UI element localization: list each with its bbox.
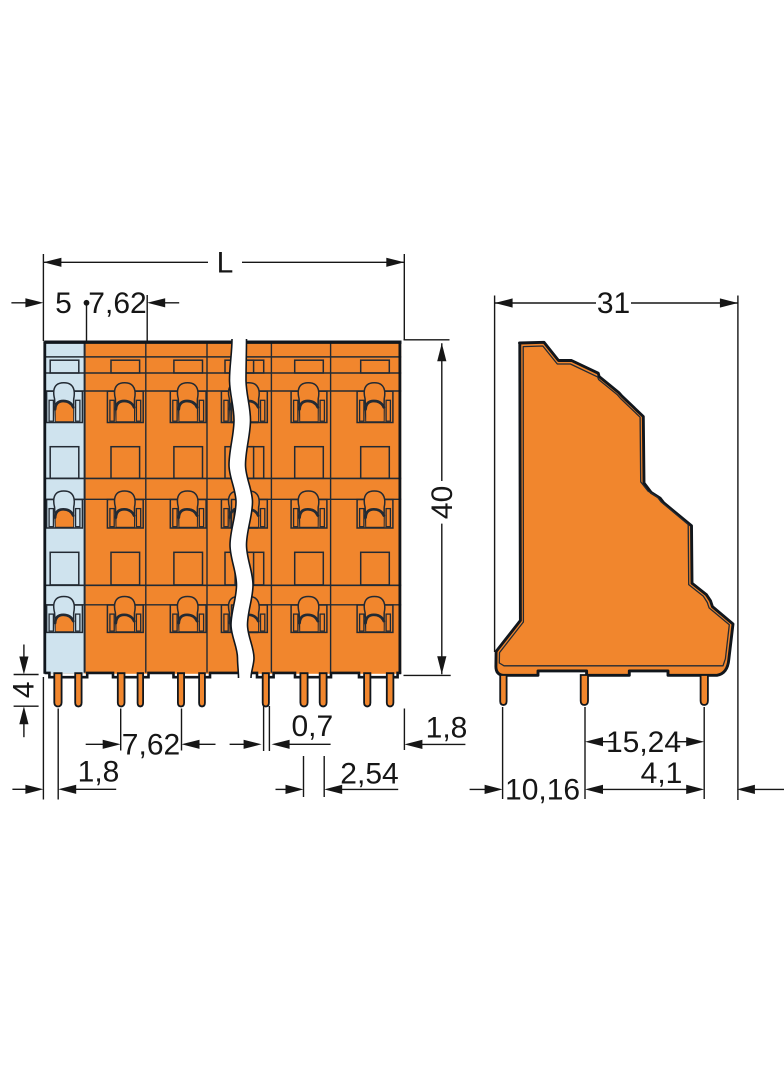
svg-text:7,62: 7,62 bbox=[88, 287, 146, 320]
svg-text:0,7: 0,7 bbox=[291, 710, 333, 743]
svg-text:31: 31 bbox=[597, 287, 630, 320]
svg-text:1,8: 1,8 bbox=[78, 756, 120, 789]
svg-text:L: L bbox=[217, 247, 234, 280]
svg-text:15,24: 15,24 bbox=[606, 726, 681, 759]
svg-text:1,8: 1,8 bbox=[426, 712, 468, 745]
svg-text:5: 5 bbox=[55, 287, 72, 320]
svg-text:7,62: 7,62 bbox=[122, 729, 180, 762]
svg-text:10,16: 10,16 bbox=[505, 774, 580, 807]
svg-text:4: 4 bbox=[7, 681, 40, 698]
svg-text:4,1: 4,1 bbox=[641, 757, 683, 790]
svg-text:2,54: 2,54 bbox=[340, 757, 398, 790]
svg-text:40: 40 bbox=[426, 486, 459, 519]
